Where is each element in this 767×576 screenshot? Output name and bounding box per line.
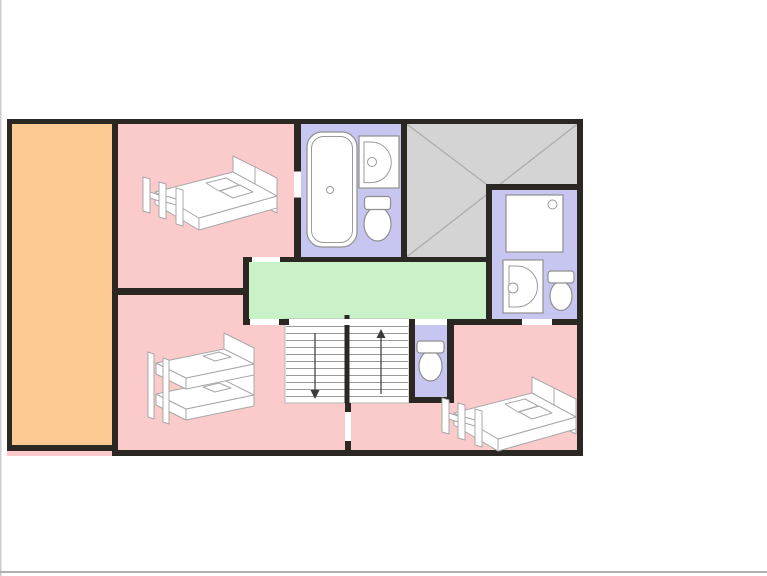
wall-side-room-bottom	[7, 445, 118, 451]
floor-plan-canvas	[0, 0, 767, 576]
door-opening-ensuite	[522, 319, 552, 325]
door-opening-bedroom2-bedroom3	[345, 412, 351, 441]
canvas-edge-bottom	[0, 571, 767, 573]
sink-icon-ensuite	[503, 260, 543, 313]
wall-outer-right	[577, 119, 583, 456]
wall-side-room-right	[112, 119, 118, 456]
stair-opening	[289, 319, 409, 325]
door-opening-bedroom2-landing	[250, 319, 279, 325]
stair-divider	[345, 315, 350, 403]
wall-wc-right	[447, 319, 454, 403]
wall-bathroom-void	[401, 119, 407, 262]
room-landing	[243, 257, 486, 325]
wall-landing-top	[243, 257, 492, 262]
toilet-icon-ensuite	[548, 271, 574, 311]
wall-void-ensuite	[486, 184, 583, 190]
room-side-room	[7, 119, 118, 451]
door-opening-bedroom1-bathroom	[294, 172, 301, 198]
wall-ensuite-left	[486, 184, 492, 325]
wall-bedroom-divider-left	[112, 288, 249, 295]
door-opening-wc	[415, 319, 447, 325]
wall-outer-left	[7, 119, 12, 451]
bathtub-icon	[307, 132, 357, 247]
toilet-icon-main	[364, 197, 391, 242]
wall-wc-left	[409, 319, 415, 403]
door-opening-bedroom1-landing	[252, 257, 280, 262]
sink-icon-main	[359, 136, 399, 188]
shower-icon	[506, 195, 563, 252]
canvas-edge-left	[0, 0, 2, 576]
toilet-icon-wc	[417, 341, 444, 381]
